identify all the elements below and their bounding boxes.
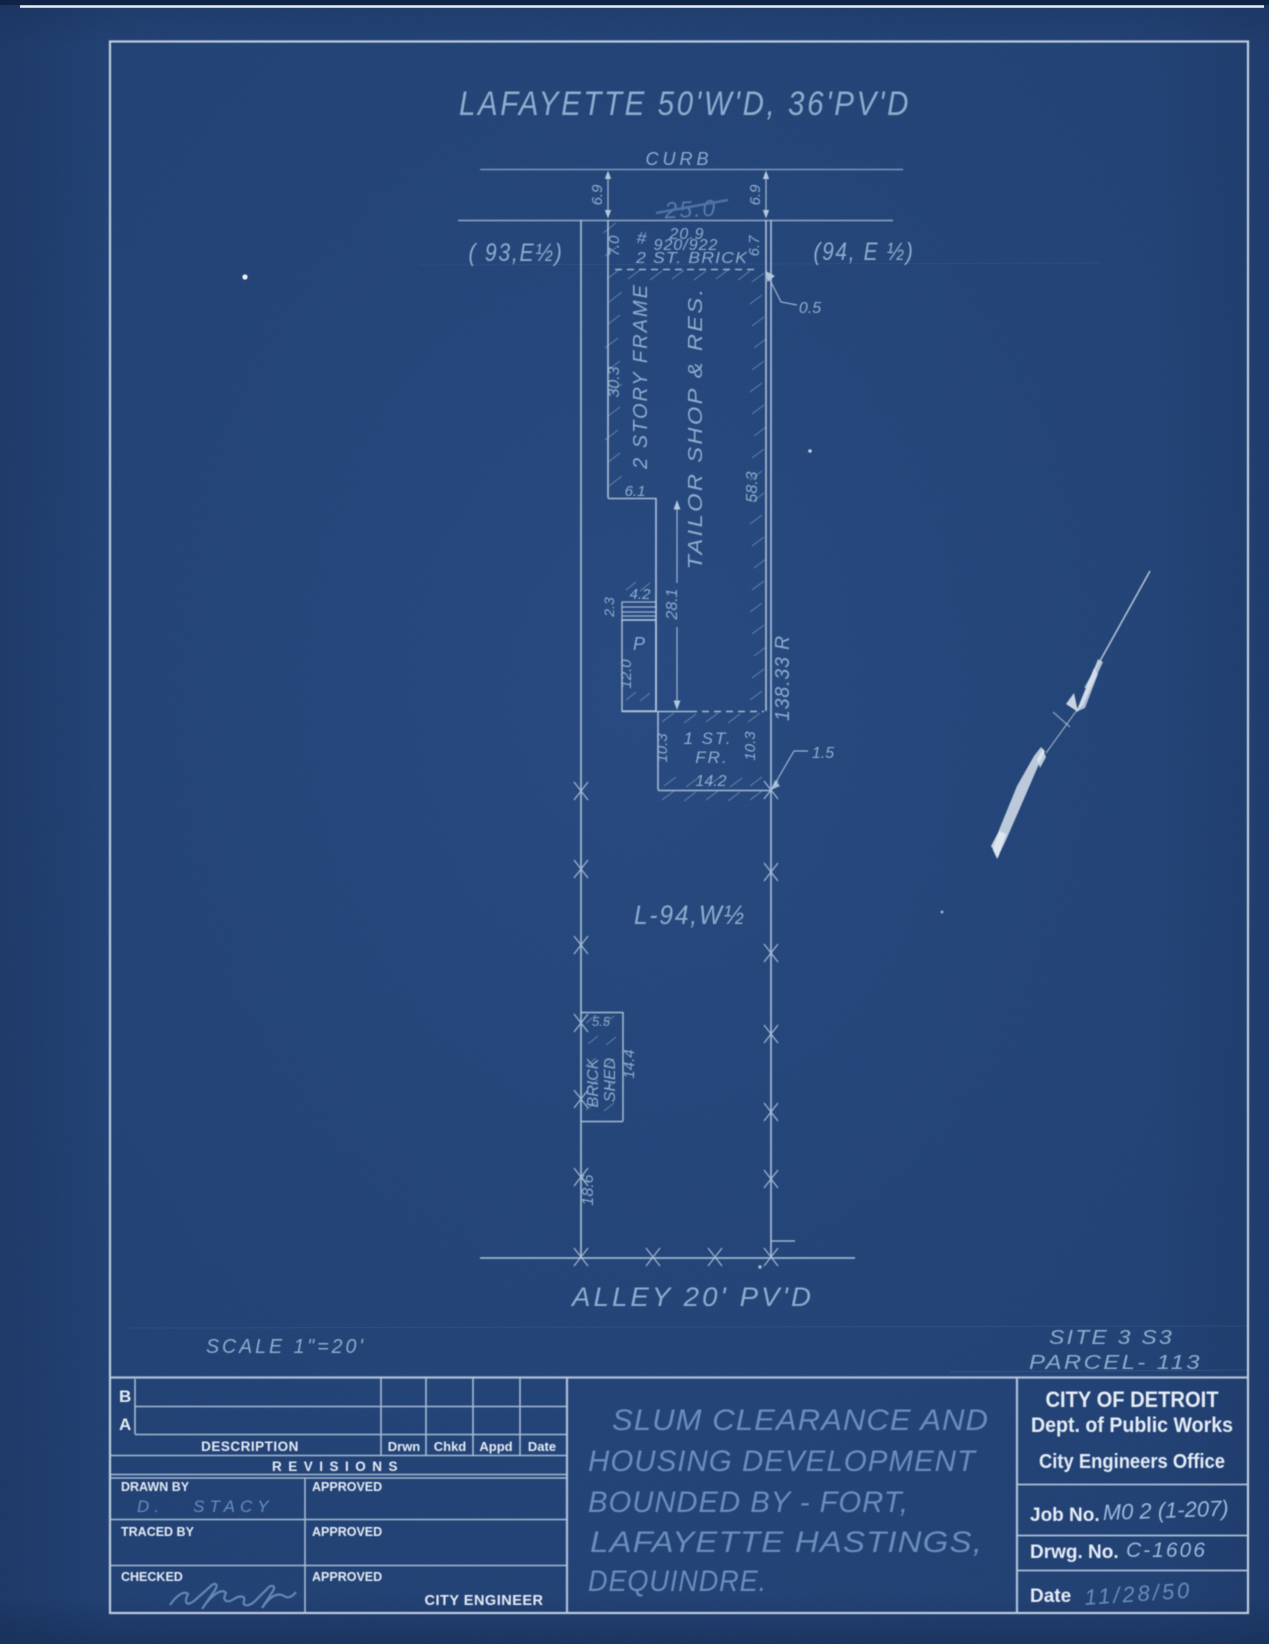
svg-text:Dept. of Public Works: Dept. of Public Works — [1031, 1414, 1233, 1437]
svg-text:10.3: 10.3 — [742, 731, 759, 761]
svg-text:APPROVED: APPROVED — [312, 1525, 382, 1539]
svg-text:LAFAYETTE HASTINGS,: LAFAYETTE HASTINGS, — [590, 1526, 983, 1559]
svg-text:CITY OF DETROIT: CITY OF DETROIT — [1046, 1387, 1220, 1412]
svg-text:1 ST.: 1 ST. — [683, 729, 732, 748]
svg-text:REVISIONS: REVISIONS — [272, 1459, 404, 1474]
svg-text:APPROVED: APPROVED — [312, 1570, 382, 1584]
svg-text:FR.: FR. — [695, 748, 728, 767]
svg-text:14.2: 14.2 — [695, 773, 726, 790]
svg-text:PARCEL- 113: PARCEL- 113 — [1029, 1352, 1202, 1374]
svg-text:A: A — [119, 1415, 131, 1434]
svg-text:APPROVED: APPROVED — [312, 1480, 382, 1494]
svg-text:D. STACY: D. STACY — [137, 1497, 274, 1516]
svg-text:28.1: 28.1 — [664, 588, 681, 620]
svg-text:10.3: 10.3 — [654, 733, 671, 763]
svg-text:SLUM CLEARANCE AND: SLUM CLEARANCE AND — [612, 1404, 989, 1437]
svg-text:L-94,W½: L-94,W½ — [634, 900, 746, 930]
svg-text:6.1: 6.1 — [625, 483, 646, 500]
svg-text:Chkd: Chkd — [434, 1439, 467, 1454]
svg-text:18.6: 18.6 — [580, 1174, 597, 1205]
svg-text:Drwn: Drwn — [388, 1439, 421, 1454]
svg-text:14.4: 14.4 — [621, 1049, 638, 1078]
svg-text:SHED: SHED — [602, 1057, 619, 1102]
svg-text:M0 2 (1-207): M0 2 (1-207) — [1102, 1496, 1229, 1525]
svg-text:58.3: 58.3 — [744, 471, 761, 502]
svg-text:TAILOR SHOP & RES.: TAILOR SHOP & RES. — [685, 287, 707, 570]
svg-text:BOUNDED BY - FORT,: BOUNDED BY - FORT, — [588, 1486, 909, 1519]
svg-text:Date: Date — [528, 1439, 556, 1454]
svg-text:DRAWN BY: DRAWN BY — [121, 1480, 190, 1494]
svg-text:City Engineers Office: City Engineers Office — [1039, 1451, 1225, 1473]
svg-text:30.3: 30.3 — [606, 366, 623, 397]
svg-text:138.33 R: 138.33 R — [772, 635, 794, 721]
svg-text:P: P — [633, 634, 645, 654]
svg-text:SCALE 1"=20': SCALE 1"=20' — [206, 1336, 366, 1358]
svg-text:ALLEY 20' PV'D: ALLEY 20' PV'D — [570, 1282, 814, 1312]
svg-text:6.9: 6.9 — [589, 184, 606, 206]
svg-text:2.3: 2.3 — [601, 597, 617, 618]
svg-text:Date: Date — [1030, 1586, 1071, 1607]
svg-text:SITE 3 S3: SITE 3 S3 — [1049, 1327, 1174, 1349]
svg-text:6.7: 6.7 — [746, 235, 763, 257]
svg-text:Drwg. No.: Drwg. No. — [1030, 1542, 1119, 1563]
svg-text:Appd: Appd — [479, 1439, 512, 1454]
svg-text:0.5: 0.5 — [799, 300, 821, 317]
svg-text:6.9: 6.9 — [747, 184, 764, 206]
svg-text:2 ST. BRICK: 2 ST. BRICK — [635, 250, 748, 267]
svg-text:C-1606: C-1606 — [1126, 1539, 1207, 1562]
svg-text:HOUSING DEVELOPMENT: HOUSING DEVELOPMENT — [588, 1445, 978, 1478]
svg-text:4.2: 4.2 — [630, 586, 652, 603]
svg-text:B: B — [119, 1387, 131, 1406]
svg-text:1.5: 1.5 — [812, 745, 834, 762]
svg-text:12.0: 12.0 — [618, 659, 635, 689]
svg-text:DESCRIPTION: DESCRIPTION — [201, 1439, 299, 1454]
svg-text:TRACED BY: TRACED BY — [121, 1525, 195, 1539]
svg-text:Job No.: Job No. — [1030, 1505, 1100, 1526]
svg-text:DEQUINDRE.: DEQUINDRE. — [588, 1565, 767, 1598]
svg-text:(94, E ½): (94, E ½) — [814, 238, 915, 266]
svg-text:( 93,E½): ( 93,E½) — [469, 239, 564, 267]
svg-text:LAFAYETTE 50'W'D, 36'PV'D: LAFAYETTE 50'W'D, 36'PV'D — [459, 85, 911, 123]
svg-text:CHECKED: CHECKED — [121, 1570, 183, 1584]
svg-text:CURB: CURB — [645, 149, 712, 169]
svg-text:CITY ENGINEER: CITY ENGINEER — [424, 1593, 543, 1609]
svg-text:2 STORY FRAME: 2 STORY FRAME — [630, 283, 652, 470]
